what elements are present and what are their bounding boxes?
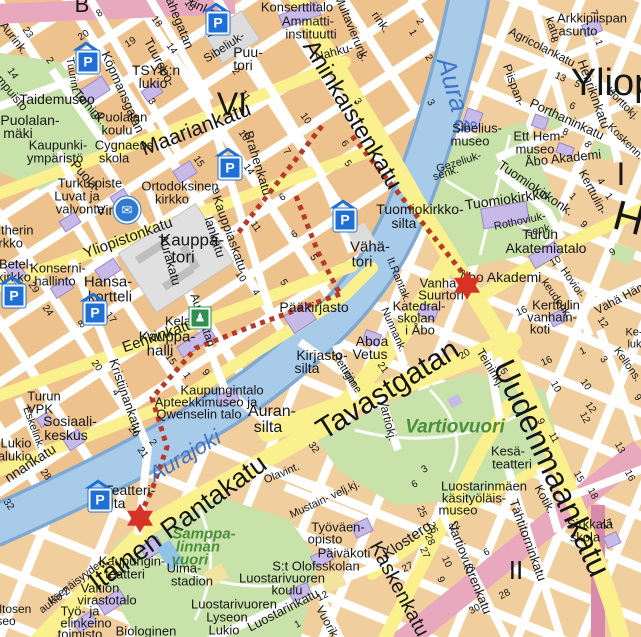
map-label: museo — [450, 135, 489, 148]
map-label: koulu — [271, 584, 302, 597]
house-number: 1 — [406, 28, 417, 38]
map-label: Hovioi- — [558, 266, 587, 300]
map-label: teatteri — [492, 458, 532, 471]
house-number: 10 — [578, 378, 593, 393]
house-number: 3 — [597, 355, 608, 365]
house-number: 28 — [498, 588, 513, 602]
map-label: Vartiokj. — [377, 398, 399, 442]
house-number: 10 — [548, 380, 562, 395]
map-label: It.Rantak. — [384, 256, 412, 304]
map-label: kirkko — [0, 237, 23, 250]
house-number: 32 — [306, 441, 321, 456]
house-number: 1 — [602, 192, 613, 202]
destination-star-icon — [127, 504, 153, 526]
parking-icon: P — [3, 285, 26, 308]
map-label: Qwenselin talo — [156, 408, 241, 421]
parking-icon: P — [334, 209, 357, 232]
map-label: Vuorik. — [314, 604, 342, 637]
map-label: asunto — [558, 25, 597, 38]
map-label: Lukio — [208, 624, 239, 637]
map-label: B — [75, 0, 90, 16]
house-number: 10 — [233, 270, 248, 285]
map-label: museo — [438, 504, 477, 517]
parking-icon: P — [89, 489, 112, 512]
house-number: 28 — [38, 468, 53, 483]
map-label: Ke- — [625, 328, 641, 339]
map-label: Mustain- velj.kj. — [288, 479, 361, 521]
map-label: opisto — [308, 533, 343, 546]
parking-icon: P — [219, 157, 242, 180]
map-label: Kela — [165, 315, 191, 328]
house-number: 18 — [149, 15, 164, 30]
map-label: instituutti — [285, 28, 336, 41]
map-labels-layer: AninkaistenkatuMaariankatuYliopistonkatu… — [0, 0, 641, 637]
house-number: 1 — [578, 346, 587, 357]
house-number: 20 — [89, 359, 104, 374]
house-number: 1 — [592, 39, 603, 48]
map-label: skola — [99, 152, 129, 165]
parking-icon: P — [84, 302, 107, 325]
house-number: 2 — [413, 17, 424, 27]
house-number: 13 — [553, 71, 567, 85]
house-number: 3 — [420, 464, 430, 475]
house-number: 5 — [307, 253, 318, 263]
house-number: 18 — [585, 487, 599, 502]
map-label: II — [509, 557, 523, 583]
map-label: I — [617, 158, 626, 190]
map-label: vuori — [172, 553, 209, 568]
map-label: Kerttulin- — [577, 168, 609, 216]
map-label: silta — [295, 361, 320, 375]
map-label: Aninkaistenkatu — [298, 36, 406, 194]
parking-icon: P — [77, 51, 100, 74]
map-label: Piispan- — [501, 63, 527, 108]
map-label: tori — [352, 255, 373, 270]
parking-icon: P — [207, 12, 230, 35]
map-label: Hansa- — [84, 275, 132, 290]
house-number: 10 — [549, 255, 564, 269]
map-label: koulu — [101, 124, 132, 137]
map-label: Vähä Häm. — [593, 278, 641, 317]
map-label: Pääkirjasto — [279, 300, 348, 314]
house-number: 6 — [410, 479, 420, 490]
house-number: 15 — [191, 155, 206, 170]
house-number: 6 — [338, 139, 349, 149]
map-label: lukio — [139, 76, 168, 90]
map-label: Päiväkoti — [318, 547, 371, 560]
house-number: 19 — [124, 36, 139, 50]
map-label: silta — [392, 216, 417, 230]
house-number: 16 — [622, 469, 636, 484]
map-label: hallinto — [34, 275, 75, 288]
house-number: 9 — [608, 247, 618, 258]
house-number: 3 — [424, 98, 435, 108]
city-map[interactable]: AninkaistenkatuMaariankatuYliopistonkatu… — [0, 0, 641, 637]
house-number: 9 — [577, 219, 588, 230]
map-label: Sosiaali- — [43, 414, 97, 428]
house-number: 12 — [316, 590, 331, 604]
map-label: rink. — [370, 9, 393, 34]
house-number: 4 — [249, 288, 260, 298]
map-label: Taidemuseo — [19, 92, 95, 106]
house-number: 24 — [40, 304, 55, 319]
house-number: 6 — [290, 229, 300, 240]
map-label: Olavint. — [263, 462, 302, 487]
house-number: 6 — [482, 547, 492, 558]
map-label: keskus — [44, 428, 88, 442]
house-number: 6 — [567, 101, 576, 112]
house-number: 14 — [164, 42, 179, 57]
map-label: Biologinen — [116, 625, 177, 637]
house-number: 28 — [422, 533, 436, 547]
map-label: stadion — [171, 575, 213, 588]
map-label: i Åbo — [405, 324, 435, 337]
house-number: 10 — [298, 112, 313, 127]
house-number: 9 — [434, 575, 445, 584]
map-label: luk. — [627, 340, 641, 351]
house-number: 5 — [341, 159, 352, 169]
house-number: 3 — [145, 97, 156, 107]
house-number: 32 — [1, 498, 16, 513]
kela-icon: ♟ — [190, 308, 211, 329]
house-number: 1 — [293, 619, 303, 630]
house-number: 5 — [277, 278, 288, 288]
house-number: 1 — [566, 191, 577, 202]
map-label: Vartiovuori — [405, 418, 505, 437]
map-label: skola — [570, 531, 600, 544]
map-label: toimisto — [58, 628, 103, 637]
house-number: 21 — [135, 446, 150, 461]
house-number: 20 — [77, 29, 92, 43]
house-number: 1 — [180, 371, 191, 381]
map-label: Kellons. — [611, 346, 641, 384]
house-number: 7 — [280, 147, 291, 157]
house-number: 11 — [248, 220, 262, 234]
house-number: 27 — [417, 546, 431, 560]
map-label: kirkko — [155, 193, 189, 206]
map-label: S:t Olofsskolan — [272, 560, 359, 573]
map-label: seo — [0, 615, 16, 627]
house-number: 2 — [146, 438, 157, 448]
map-label: Tuomiokirkko- — [376, 202, 463, 216]
map-label: ympäristö — [27, 152, 83, 165]
house-number: 2 — [229, 67, 240, 77]
house-number: 6 — [278, 192, 288, 203]
map-label: Vähä- — [350, 240, 390, 255]
house-number: 16 — [540, 355, 554, 369]
house-number: 9 — [199, 368, 210, 378]
house-number: 10 — [439, 555, 453, 569]
map-label: Konserttitalo — [261, 1, 333, 14]
house-number: 8 — [95, 8, 105, 19]
map-label: Akatemiatalo — [506, 241, 587, 255]
map-label: teatteri — [105, 568, 145, 581]
post-office-icon: ✉ — [114, 197, 141, 224]
house-number: 2 — [43, 56, 54, 66]
house-number: 4 — [594, 177, 605, 187]
house-number: 12 — [595, 316, 610, 331]
house-number: 9 — [631, 393, 641, 403]
map-label: koti — [530, 323, 550, 336]
map-label: H — [609, 194, 641, 242]
house-number: 13 — [612, 441, 626, 456]
destination-star-icon — [454, 271, 480, 293]
map-label: silta — [254, 420, 282, 436]
map-label: Vetus — [352, 347, 387, 361]
